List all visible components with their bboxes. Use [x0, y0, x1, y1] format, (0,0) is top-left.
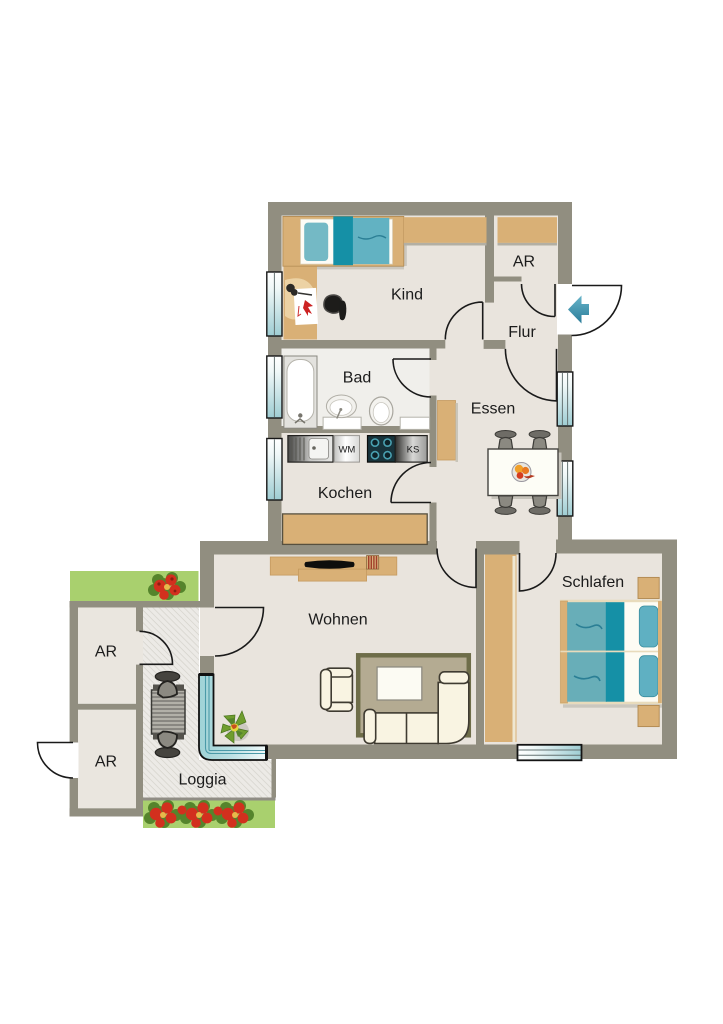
svg-text:Kochen: Kochen [318, 485, 372, 502]
svg-text:Bad: Bad [343, 370, 371, 387]
svg-text:KS: KS [407, 445, 420, 456]
svg-text:AR: AR [513, 254, 535, 271]
svg-text:AR: AR [95, 644, 117, 661]
svg-text:WM: WM [338, 445, 355, 456]
svg-text:Wohnen: Wohnen [308, 612, 367, 629]
svg-text:Flur: Flur [508, 324, 536, 341]
svg-text:Kind: Kind [391, 287, 423, 304]
svg-text:Loggia: Loggia [178, 772, 226, 789]
svg-text:AR: AR [95, 754, 117, 771]
svg-text:Essen: Essen [471, 401, 515, 418]
svg-text:Schlafen: Schlafen [562, 574, 624, 591]
